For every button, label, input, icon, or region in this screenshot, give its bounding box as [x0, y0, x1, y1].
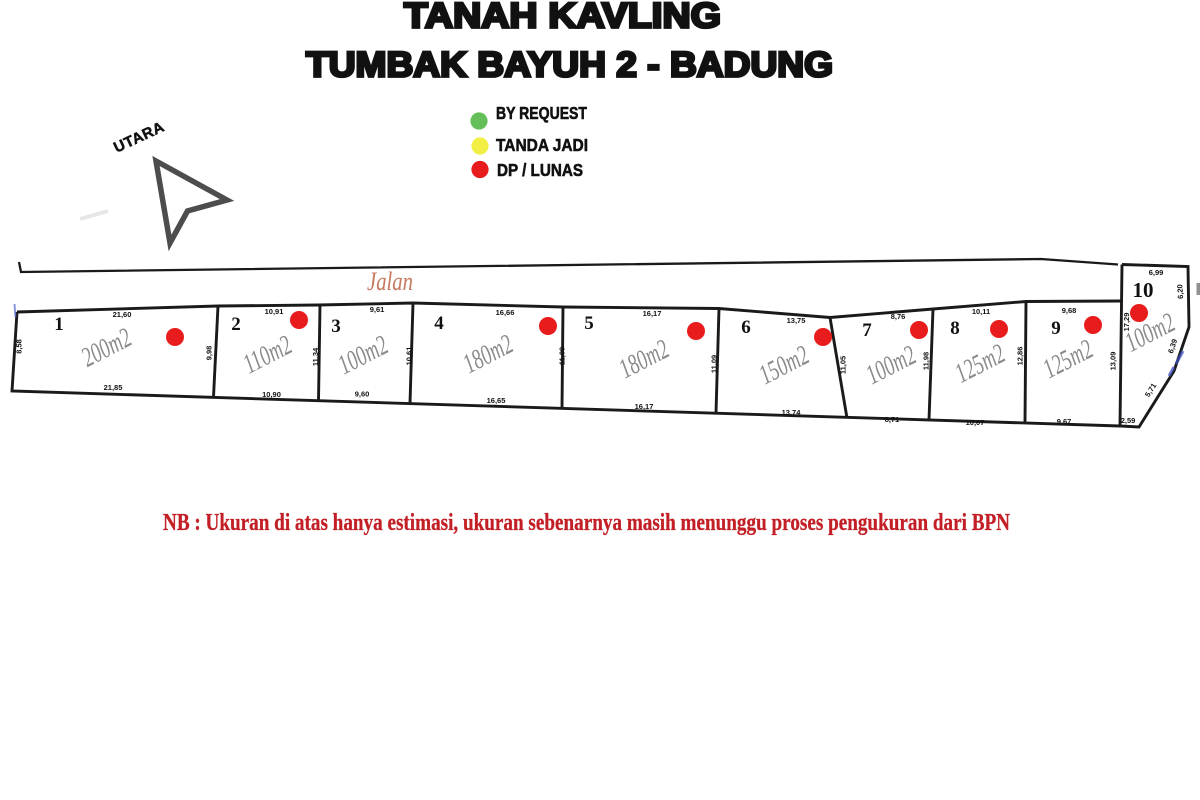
svg-text:180m2: 180m2	[614, 334, 674, 385]
svg-text:10,11: 10,11	[972, 307, 990, 316]
svg-text:3: 3	[331, 316, 341, 337]
svg-text:BY REQUEST: BY REQUEST	[496, 103, 587, 123]
svg-text:11,09: 11,09	[558, 347, 567, 365]
svg-text:9: 9	[1051, 318, 1061, 339]
svg-text:11,98: 11,98	[922, 352, 931, 370]
svg-text:2,59: 2,59	[1121, 416, 1136, 425]
svg-text:21,85: 21,85	[104, 383, 123, 392]
svg-text:7: 7	[862, 320, 872, 341]
svg-text:5,71: 5,71	[1143, 381, 1158, 398]
svg-text:8: 8	[950, 318, 960, 339]
svg-text:11,09: 11,09	[710, 355, 719, 373]
svg-text:11,05: 11,05	[839, 356, 848, 374]
svg-text:6: 6	[741, 317, 751, 338]
svg-text:TANAH KAVLING: TANAH KAVLING	[404, 0, 721, 36]
svg-text:100m2: 100m2	[333, 330, 393, 381]
svg-text:6,99: 6,99	[1149, 268, 1164, 277]
svg-text:10,61: 10,61	[405, 347, 414, 366]
svg-text:16,17: 16,17	[635, 402, 654, 411]
svg-text:9,98: 9,98	[205, 346, 214, 361]
svg-text:1: 1	[54, 314, 64, 335]
svg-text:UTARA: UTARA	[111, 118, 167, 156]
svg-text:8,71: 8,71	[885, 415, 900, 424]
svg-text:125m2: 125m2	[1038, 334, 1098, 385]
svg-text:17,29: 17,29	[1122, 313, 1131, 332]
svg-text:16,66: 16,66	[496, 308, 515, 317]
svg-text:9,60: 9,60	[355, 390, 370, 399]
svg-text:10,90: 10,90	[262, 390, 281, 399]
svg-text:8,58: 8,58	[15, 339, 24, 354]
svg-text:16,65: 16,65	[487, 396, 506, 405]
svg-text:TANDA JADI: TANDA JADI	[496, 135, 588, 155]
svg-text:150m2: 150m2	[754, 340, 814, 391]
svg-text:2: 2	[231, 314, 241, 335]
svg-text:13,09: 13,09	[1109, 352, 1118, 371]
svg-text:DP / LUNAS: DP / LUNAS	[497, 160, 583, 180]
svg-text:NB : Ukuran di atas hanya esti: NB : Ukuran di atas hanya estimasi, ukur…	[163, 510, 1011, 536]
svg-text:110m2: 110m2	[238, 330, 297, 380]
svg-text:13,75: 13,75	[787, 316, 806, 325]
svg-text:9,67: 9,67	[1057, 417, 1072, 426]
svg-text:9,68: 9,68	[1062, 306, 1077, 315]
svg-text:13,74: 13,74	[782, 408, 802, 417]
svg-text:Jalan: Jalan	[367, 267, 413, 296]
svg-text:4: 4	[434, 313, 444, 334]
svg-text:12,86: 12,86	[1016, 347, 1025, 366]
svg-text:10: 10	[1133, 278, 1154, 302]
svg-text:8,76: 8,76	[891, 312, 906, 321]
svg-text:5: 5	[584, 313, 594, 334]
svg-text:10,07: 10,07	[966, 418, 985, 427]
svg-text:11,34: 11,34	[311, 347, 320, 366]
svg-text:9,61: 9,61	[370, 305, 385, 314]
svg-text:10,91: 10,91	[265, 307, 284, 316]
svg-text:TUMBAK BAYUH 2 - BADUNG: TUMBAK BAYUH 2 - BADUNG	[306, 46, 833, 85]
svg-text:125m2: 125m2	[950, 339, 1010, 390]
svg-text:200m2: 200m2	[77, 323, 137, 374]
svg-text:100m2: 100m2	[861, 340, 921, 391]
svg-text:6,20: 6,20	[1175, 284, 1185, 299]
svg-text:21,60: 21,60	[113, 310, 132, 319]
svg-text:180m2: 180m2	[458, 329, 518, 380]
svg-text:16,17: 16,17	[643, 309, 662, 318]
